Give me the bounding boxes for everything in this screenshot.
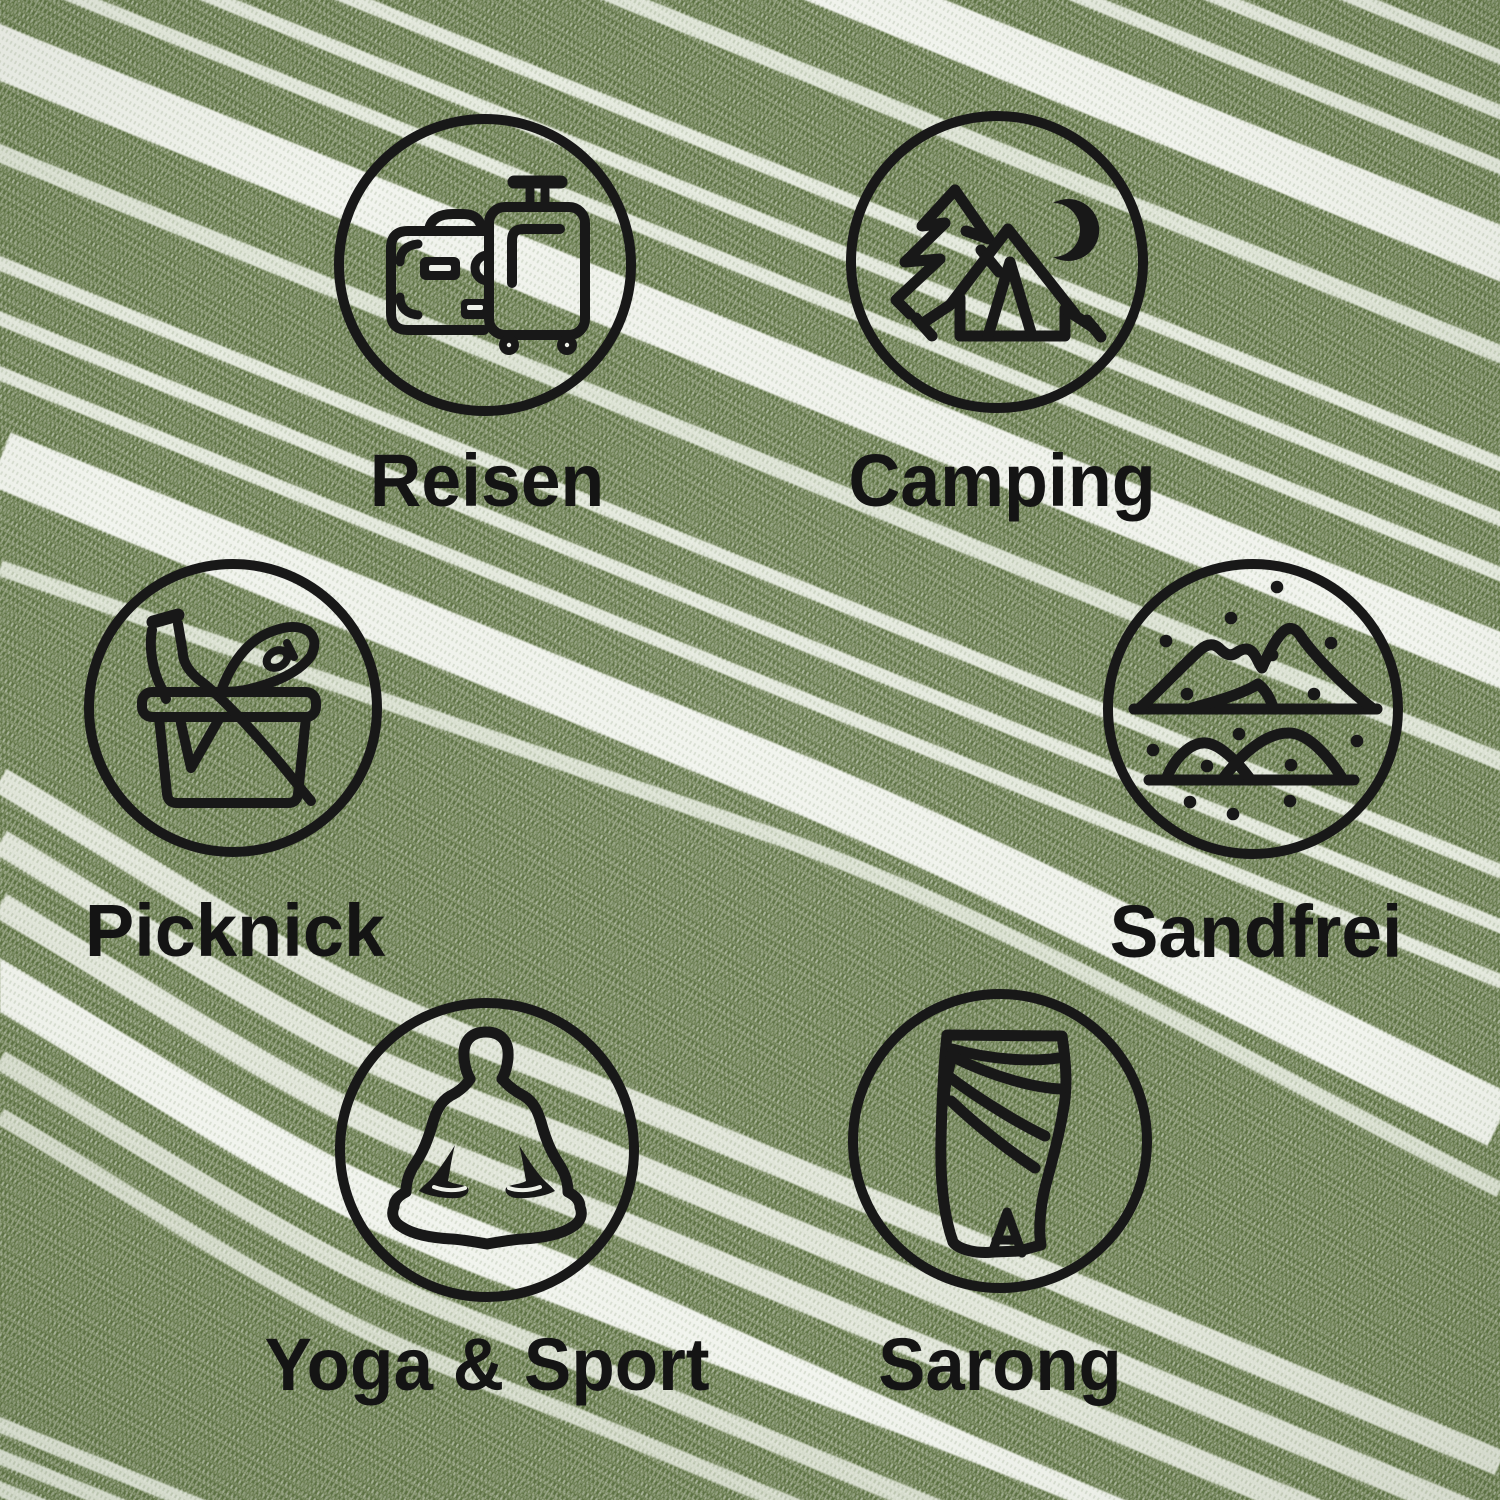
svg-text:Sarong: Sarong <box>878 1325 1121 1407</box>
svg-text:Sandfrei: Sandfrei <box>1110 890 1403 973</box>
svg-text:Camping: Camping <box>848 440 1155 522</box>
svg-text:Yoga & Sport: Yoga & Sport <box>264 1324 709 1407</box>
svg-text:Reisen: Reisen <box>370 440 604 522</box>
svg-text:Picknick: Picknick <box>85 889 386 972</box>
